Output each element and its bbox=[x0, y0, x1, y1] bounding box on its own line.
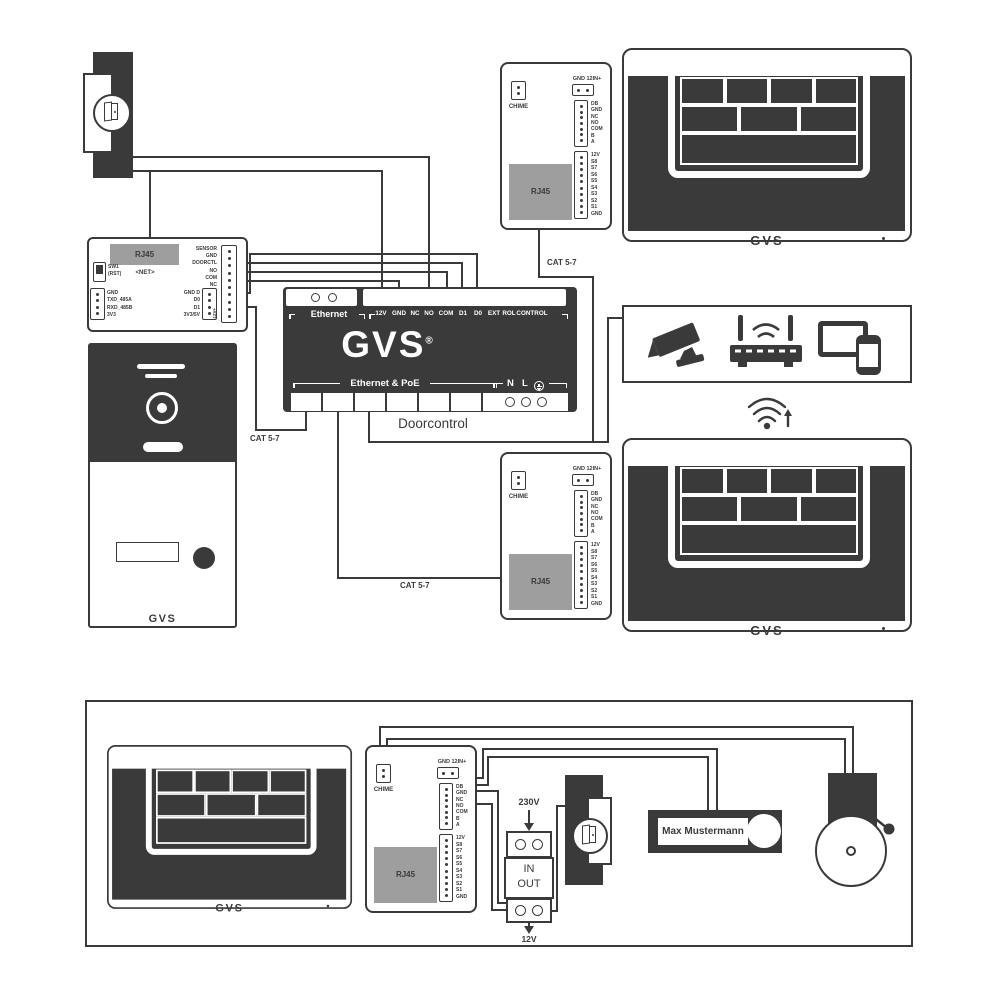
mains-terminal[interactable] bbox=[483, 393, 568, 411]
relay-terminal-strip[interactable] bbox=[574, 100, 588, 147]
net-12v-label: -12V+ bbox=[212, 294, 217, 320]
cctv-camera-icon bbox=[640, 317, 720, 375]
net-right-terminal-labels: SENSORGNDDOORCTLNOCOMNC bbox=[173, 247, 217, 288]
sw1-switch bbox=[93, 262, 106, 282]
chime-relay-module: CHIME GND 12IN+ DBGNDNCNOCOMBA 12VS8S7S6… bbox=[500, 62, 612, 230]
menu-tile[interactable] bbox=[206, 793, 256, 817]
chime-relay-module: CHIME GND 12IN+ DBGNDNCNOCOMBA 12VS8S7S6… bbox=[365, 745, 477, 913]
chime-rj45-port[interactable]: RJ45 bbox=[374, 847, 437, 903]
scene-terminal-strip[interactable] bbox=[439, 834, 453, 902]
poe-port[interactable] bbox=[355, 393, 385, 411]
menu-tile[interactable] bbox=[269, 770, 307, 794]
cat-label-2: CAT 5-7 bbox=[400, 581, 430, 590]
net-right-terminal-strip bbox=[221, 245, 237, 323]
power-in-connector[interactable] bbox=[572, 474, 594, 486]
menu-tile[interactable] bbox=[680, 105, 739, 133]
menu-tile[interactable] bbox=[739, 495, 798, 523]
net-left-terminal-strip bbox=[90, 288, 105, 320]
doorcontrol-logo: GVS® bbox=[308, 324, 468, 366]
menu-tile[interactable] bbox=[156, 817, 306, 844]
menu-tile[interactable] bbox=[725, 467, 770, 495]
monitor-mic-dot bbox=[882, 237, 885, 240]
scene-terminal-strip[interactable] bbox=[574, 151, 588, 219]
doorbell-button-unit: Max Mustermann bbox=[648, 810, 782, 853]
poe-port-row bbox=[291, 393, 481, 411]
chime-connector[interactable] bbox=[511, 81, 526, 100]
monitor-menu-tiles bbox=[680, 77, 858, 165]
l-label: L bbox=[522, 378, 528, 389]
chime-relay-module: CHIME GND 12IN+ DBGNDNCNOCOMBA 12VS8S7S6… bbox=[500, 452, 612, 620]
name-plate bbox=[116, 542, 179, 562]
menu-tile[interactable] bbox=[680, 133, 858, 165]
camera-lens-center bbox=[157, 403, 167, 413]
scene-terminal-labels: 12VS8S7S6S5S4S3S2S1GND bbox=[591, 543, 611, 607]
door-station-top bbox=[90, 345, 235, 462]
door-station-brand: GVS bbox=[90, 613, 235, 625]
menu-tile[interactable] bbox=[769, 467, 814, 495]
monitor-mic-dot bbox=[882, 627, 885, 630]
menu-tile[interactable] bbox=[739, 105, 798, 133]
wire-router bbox=[593, 318, 622, 442]
tablet-phone-icon bbox=[816, 319, 892, 375]
net-rj45-port: RJ45 bbox=[110, 244, 179, 265]
cat-label-1: CAT 5-7 bbox=[250, 434, 280, 443]
light-bar bbox=[143, 442, 183, 452]
doorcontrol-title: Doorcontrol bbox=[368, 416, 498, 431]
scene-terminal-labels: 12VS8S7S6S5S4S3S2S1GND bbox=[591, 153, 611, 217]
psu-input-label: 230V bbox=[508, 797, 550, 807]
ethernet-label: Ethernet bbox=[299, 309, 359, 319]
scene-terminal-labels: 12VS8S7S6S5S4S3S2S1GND bbox=[456, 836, 476, 900]
relay-terminal-strip[interactable] bbox=[574, 490, 588, 537]
strike-door-circle bbox=[572, 818, 608, 854]
monitor-mic-dot bbox=[327, 905, 330, 908]
wifi-signal-icon bbox=[728, 388, 812, 436]
psu-in-label: IN bbox=[506, 863, 552, 875]
sw1-label: SW1 bbox=[108, 265, 119, 270]
network-devices-box bbox=[622, 305, 912, 383]
power-in-connector[interactable] bbox=[572, 84, 594, 96]
psu-out-label: OUT bbox=[506, 878, 552, 890]
menu-tile[interactable] bbox=[680, 523, 858, 555]
terminal-strip[interactable] bbox=[363, 289, 566, 306]
menu-tile[interactable] bbox=[231, 770, 269, 794]
wifi-router-icon bbox=[724, 313, 810, 377]
relay-terminal-labels: DBGNDNCNOCOMBA bbox=[591, 102, 611, 145]
doorbell-name-plate: Max Mustermann bbox=[658, 818, 748, 845]
chime-label: CHIME bbox=[502, 104, 535, 110]
monitor-menu-tiles bbox=[680, 467, 858, 555]
chime-connector[interactable] bbox=[511, 471, 526, 490]
poe-port[interactable] bbox=[387, 393, 417, 411]
door-station: GVS bbox=[88, 343, 237, 628]
door-icon bbox=[581, 825, 598, 845]
psu-body: IN OUT bbox=[504, 857, 554, 899]
rst-label: (RST) bbox=[108, 272, 121, 277]
chime-rj45-port[interactable]: RJ45 bbox=[509, 554, 572, 610]
relay-terminal-labels: DBGNDNCNOCOMBA bbox=[456, 785, 476, 828]
power-in-label: GND 12IN+ bbox=[564, 76, 610, 82]
poe-label: Ethernet & PoE bbox=[340, 378, 430, 389]
indoor-monitor: GVS bbox=[107, 745, 352, 909]
speaker-bar-small bbox=[145, 374, 177, 378]
chime-label: CHIME bbox=[367, 787, 400, 793]
cat-label-3: CAT 5-7 bbox=[547, 258, 577, 267]
scene-terminal-strip[interactable] bbox=[574, 541, 588, 609]
strike-door-circle bbox=[93, 94, 131, 132]
menu-tile[interactable] bbox=[680, 495, 739, 523]
chime-label: CHIME bbox=[502, 494, 535, 500]
relay-terminal-labels: DBGNDNCNOCOMBA bbox=[591, 492, 611, 535]
psu-out-terminals bbox=[506, 898, 552, 923]
monitor-brand: GVS bbox=[624, 623, 910, 638]
net-label: <NET> bbox=[124, 270, 166, 276]
call-button[interactable] bbox=[193, 547, 215, 569]
power-in-connector[interactable] bbox=[437, 767, 459, 779]
n-label: N bbox=[507, 378, 514, 389]
bell-gong-disc bbox=[815, 815, 887, 887]
menu-tile[interactable] bbox=[194, 770, 232, 794]
ground-icon bbox=[534, 381, 544, 391]
poe-port[interactable] bbox=[451, 393, 481, 411]
poe-port[interactable] bbox=[419, 393, 449, 411]
menu-tile[interactable] bbox=[156, 770, 194, 794]
chime-connector[interactable] bbox=[376, 764, 391, 783]
poe-port[interactable] bbox=[323, 393, 353, 411]
menu-tile[interactable] bbox=[725, 77, 770, 105]
menu-tile[interactable] bbox=[256, 793, 306, 817]
door-icon bbox=[103, 102, 120, 122]
menu-tile[interactable] bbox=[156, 793, 206, 817]
menu-tile[interactable] bbox=[799, 495, 858, 523]
psu-output-label: 12V bbox=[508, 934, 550, 944]
indoor-monitor: GVS bbox=[622, 48, 912, 242]
menu-tile[interactable] bbox=[799, 105, 858, 133]
chime-rj45-port[interactable]: RJ45 bbox=[509, 164, 572, 220]
power-in-label: GND 12IN+ bbox=[564, 466, 610, 472]
net-module: RJ45 <NET> SW1 (RST) SENSORGNDDOORCTLNOC… bbox=[87, 237, 248, 332]
psu-in-terminals bbox=[506, 831, 552, 858]
menu-tile[interactable] bbox=[680, 467, 725, 495]
net-left-terminal-labels: GNDTXD_485ARXD_485B3V3 bbox=[107, 291, 155, 318]
relay-terminal-strip[interactable] bbox=[439, 783, 453, 830]
menu-tile[interactable] bbox=[814, 77, 859, 105]
wire-cat-port2 bbox=[338, 411, 508, 578]
net-mid-terminal-labels: GND DD0D13V3/5V bbox=[161, 291, 200, 318]
doorbell-button[interactable] bbox=[747, 814, 781, 848]
menu-tile[interactable] bbox=[814, 467, 859, 495]
doorcontrol-unit: Ethernet 12V GND NC NO COM D1 D0 EXT ROL… bbox=[283, 287, 577, 412]
monitor-brand: GVS bbox=[624, 233, 910, 248]
monitor-menu-tiles bbox=[156, 770, 306, 844]
power-in-label: GND 12IN+ bbox=[429, 759, 475, 765]
menu-tile[interactable] bbox=[680, 77, 725, 105]
poe-port[interactable] bbox=[291, 393, 321, 411]
speaker-bar bbox=[137, 364, 185, 369]
indoor-monitor: GVS bbox=[622, 438, 912, 632]
wiring-diagram: RJ45 <NET> SW1 (RST) SENSORGNDDOORCTLNOC… bbox=[0, 0, 1000, 1000]
monitor-brand: GVS bbox=[109, 901, 351, 914]
ethernet-port[interactable] bbox=[286, 289, 357, 306]
menu-tile[interactable] bbox=[769, 77, 814, 105]
